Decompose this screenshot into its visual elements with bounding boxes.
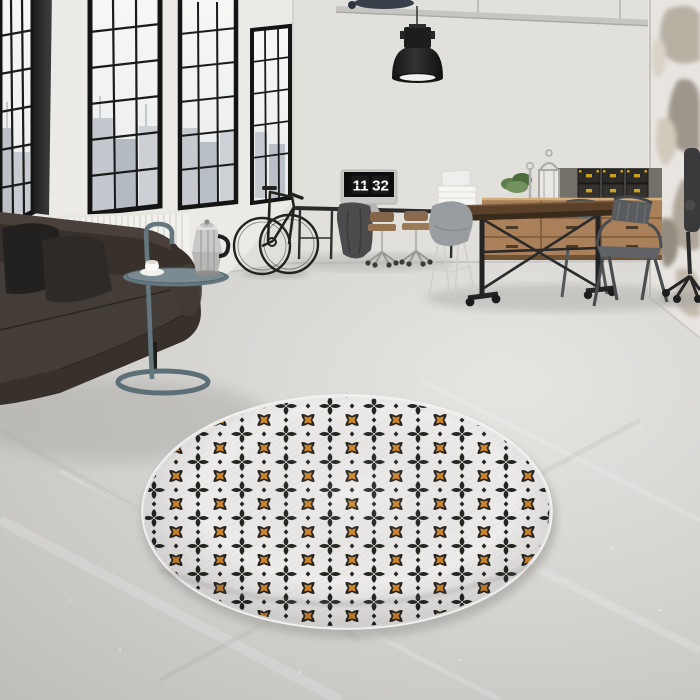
storage-boxes bbox=[578, 169, 648, 198]
sofa-pillow-2 bbox=[42, 236, 112, 303]
clock-minutes: 32 bbox=[372, 178, 389, 195]
moka-lid-knob bbox=[204, 219, 209, 224]
area-rug bbox=[141, 396, 557, 638]
clock-hours: 11 bbox=[353, 178, 369, 195]
lamp-housing bbox=[404, 27, 431, 48]
window-bay-1 bbox=[0, 0, 52, 228]
loft-room-photo: 11 32 bbox=[0, 0, 700, 700]
window-bay-2 bbox=[90, 0, 160, 214]
window-bay-4 bbox=[252, 26, 290, 203]
lamp-diffuser bbox=[400, 74, 436, 81]
scene-canvas: 11 32 bbox=[0, 0, 700, 700]
window-jamb bbox=[33, 0, 52, 215]
window-bay-3 bbox=[180, 0, 236, 208]
